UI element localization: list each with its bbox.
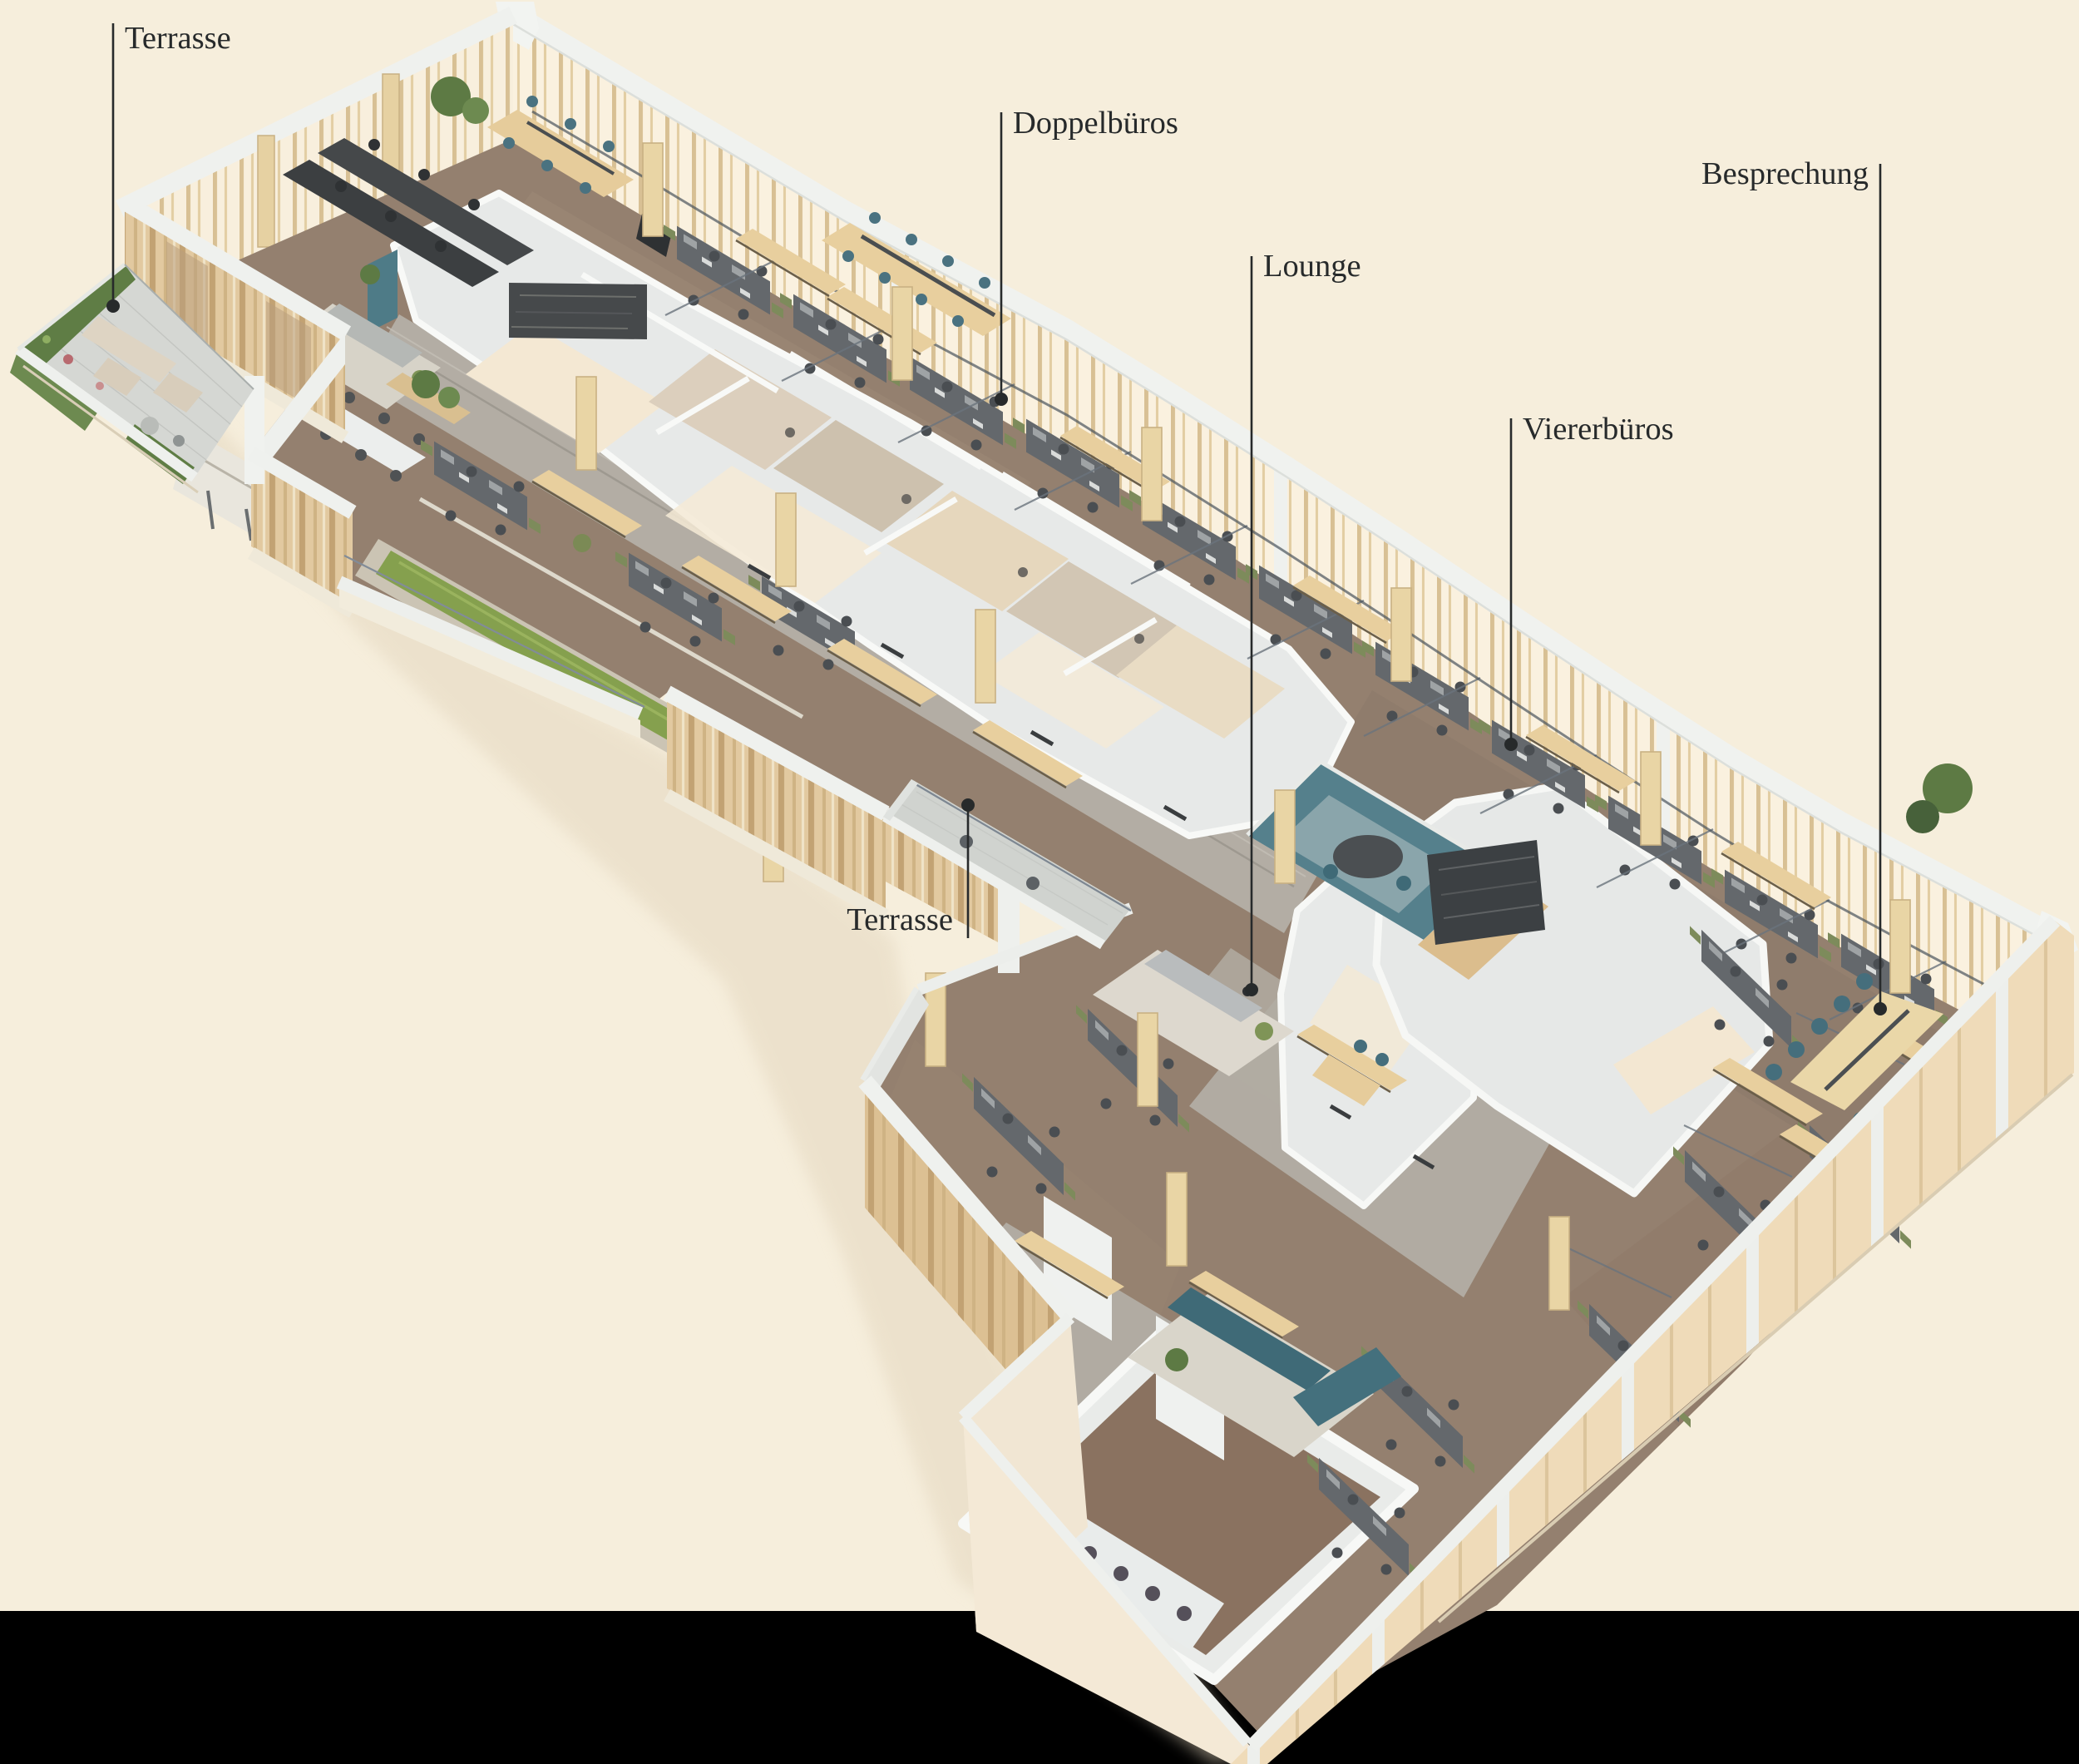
svg-text:Terrasse: Terrasse [847,902,953,937]
svg-text:Besprechung: Besprechung [1701,156,1869,191]
svg-text:Terrasse: Terrasse [125,21,231,56]
svg-text:Doppelbüros: Doppelbüros [1013,106,1178,141]
svg-text:Viererbüros: Viererbüros [1523,412,1674,447]
svg-text:Lounge: Lounge [1263,249,1361,284]
